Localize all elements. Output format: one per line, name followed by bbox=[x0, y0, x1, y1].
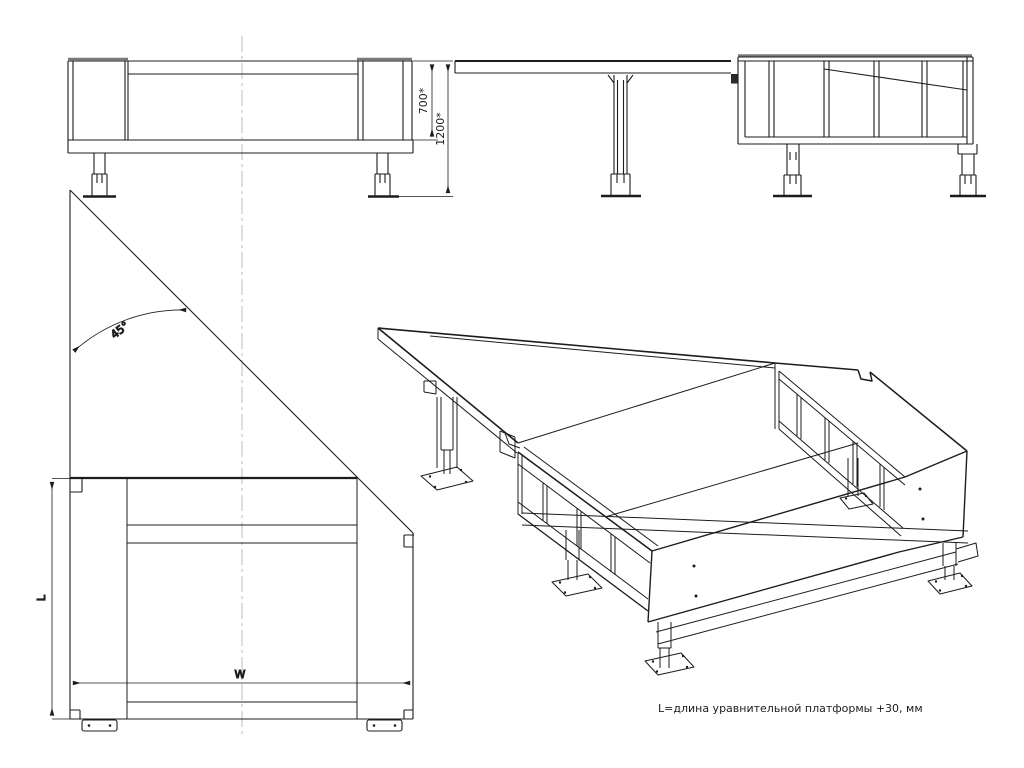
dimension-700: 700* bbox=[417, 87, 430, 114]
support-leg-left bbox=[83, 153, 116, 197]
dimension-1200: 1200* bbox=[434, 112, 447, 146]
technical-drawing-canvas: 700* 1200* bbox=[0, 0, 1024, 768]
isometric-view bbox=[378, 328, 978, 675]
plan-view: 45° L bbox=[35, 190, 414, 731]
frame-leg-left bbox=[773, 144, 812, 196]
iso-front-beam bbox=[605, 443, 967, 622]
support-leg-right bbox=[368, 153, 399, 197]
length-label: L bbox=[35, 594, 48, 601]
middle-leg bbox=[601, 75, 641, 196]
iso-near-wall bbox=[518, 447, 658, 611]
iso-deck-plate bbox=[378, 328, 775, 458]
side-frame bbox=[738, 56, 973, 145]
front-view: 700* 1200* bbox=[68, 59, 453, 197]
frame-leg-right bbox=[950, 144, 986, 196]
iso-leg-right bbox=[928, 543, 972, 594]
iso-far-wall bbox=[775, 363, 967, 536]
side-view bbox=[455, 56, 986, 197]
iso-leg-front-center bbox=[645, 622, 694, 675]
drawing-sheet: 700* 1200* bbox=[0, 0, 1024, 768]
angle-label: 45° bbox=[108, 319, 131, 341]
iso-base-rails bbox=[522, 513, 978, 644]
length-dimension bbox=[52, 479, 70, 720]
frame-diagonal bbox=[824, 69, 967, 90]
width-label: W bbox=[235, 668, 246, 681]
drawing-note: L=длина уравнительной платформы +30, мм bbox=[658, 702, 923, 715]
deck-plate-edge bbox=[455, 61, 738, 84]
